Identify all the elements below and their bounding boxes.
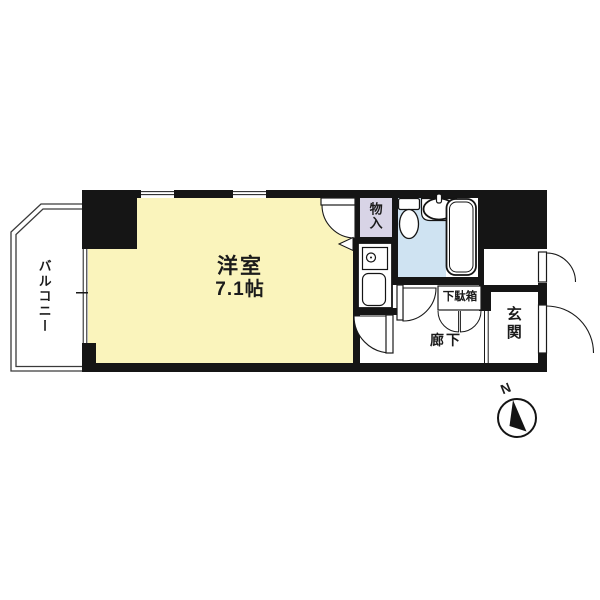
entrance-label: 玄関	[505, 306, 521, 352]
wall-kitchen-bottom	[353, 308, 398, 315]
balcony-sliding-window	[76, 249, 88, 343]
meter-box-door-leaf	[539, 252, 547, 282]
bathroom-door-leaf	[397, 285, 403, 320]
burner-dot	[370, 257, 372, 259]
main-room-label: 洋室 7.1帖	[175, 256, 305, 300]
wall-bath-bottom	[392, 277, 484, 285]
wall-smallroom-bottom	[484, 285, 547, 292]
meter-box-door	[539, 252, 576, 282]
entrance-step-line	[485, 311, 489, 363]
compass	[498, 399, 536, 437]
pillar-top-right	[481, 190, 547, 249]
floor-plan-drawing	[0, 0, 600, 600]
bathroom-door	[397, 285, 436, 321]
toilet-tank	[399, 199, 420, 210]
storage-label: 物入	[368, 202, 382, 240]
shoe-cabinet-label: 下駄箱	[438, 291, 482, 303]
storage-door-leaf	[321, 198, 355, 205]
balcony-label: バルコニー	[37, 259, 51, 345]
pillar-top-left	[82, 190, 137, 249]
washbasin-faucet	[437, 194, 442, 203]
wall-bath-right	[478, 198, 484, 285]
hallway-label: 廊下	[420, 333, 472, 348]
wall-right-low	[538, 353, 547, 372]
bathtub	[447, 199, 477, 275]
main-room-door-leaf	[386, 315, 393, 353]
top-window-1	[141, 190, 174, 198]
kitchen-sink	[363, 274, 386, 306]
window-center-tick	[76, 292, 88, 294]
toilet-bowl	[400, 210, 419, 239]
entrance-door	[539, 305, 594, 353]
shoe-cabinet-doors	[438, 311, 481, 332]
wall-left-lower	[82, 343, 96, 372]
top-window-2	[233, 190, 266, 198]
floor-plan: バルコニー 洋室 7.1帖 物入 下駄箱 廊下 玄関 N	[0, 0, 600, 600]
main-room-area: 7.1帖	[175, 280, 305, 300]
entrance-door-leaf	[539, 305, 547, 353]
wall-bottom	[82, 363, 547, 372]
main-room-name: 洋室	[175, 256, 305, 278]
